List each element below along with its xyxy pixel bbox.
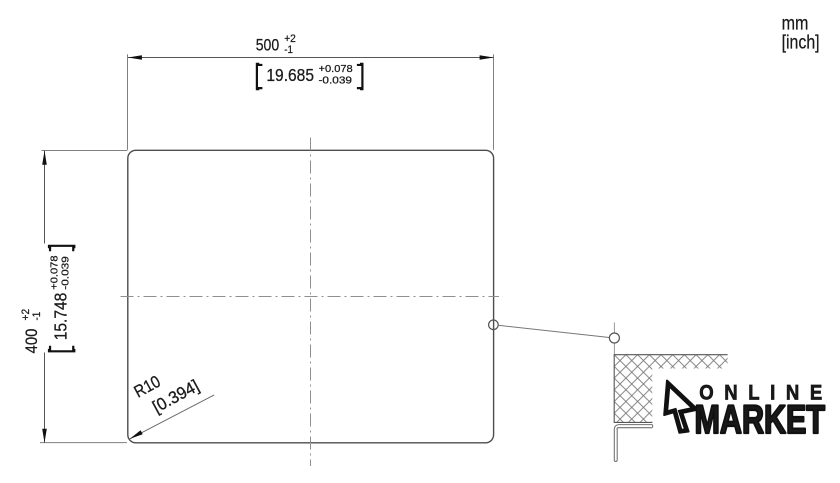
svg-text:15.748: 15.748	[50, 293, 70, 341]
svg-text:mm: mm	[782, 14, 809, 35]
svg-text:-1: -1	[31, 312, 43, 321]
svg-text:[inch]: [inch]	[782, 33, 820, 54]
svg-text:500: 500	[256, 35, 280, 54]
svg-text:400: 400	[22, 329, 41, 354]
svg-text:+0.078: +0.078	[319, 63, 353, 75]
svg-text:-0.039: -0.039	[319, 74, 353, 86]
svg-text:-0.039: -0.039	[60, 256, 72, 290]
svg-text:19.685: 19.685	[266, 65, 314, 85]
svg-text:MARKET: MARKET	[695, 398, 826, 442]
svg-text:-1: -1	[284, 44, 293, 56]
svg-text:+0.078: +0.078	[48, 255, 60, 289]
